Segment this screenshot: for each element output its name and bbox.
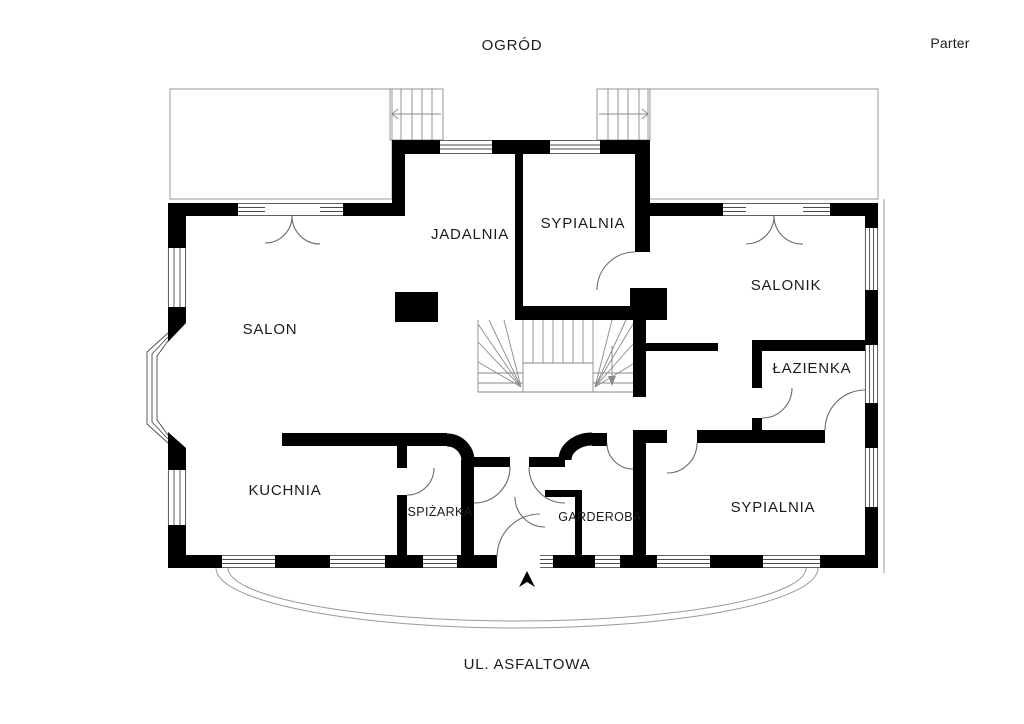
floor-plan: OGRÓD Parter JADALNIA SYPIALNIA SALONIK … bbox=[0, 0, 1024, 724]
bay-window bbox=[147, 333, 168, 443]
staircase bbox=[478, 320, 633, 392]
floor-plan-page: OGRÓD Parter JADALNIA SYPIALNIA SALONIK … bbox=[0, 0, 1024, 724]
garden-label: OGRÓD bbox=[482, 37, 543, 54]
driveway bbox=[216, 568, 818, 628]
exterior-stairs-right-icon bbox=[597, 89, 650, 140]
room-label-salonik: SALONIK bbox=[751, 277, 822, 294]
room-label-jadalnia: JADALNIA bbox=[431, 226, 509, 243]
room-label-sypialnia-bottom: SYPIALNIA bbox=[731, 499, 816, 516]
street-label: UL. ASFALTOWA bbox=[464, 656, 591, 673]
room-label-lazienka: ŁAZIENKA bbox=[773, 360, 852, 377]
north-arrow-icon bbox=[519, 571, 535, 587]
terrace-right bbox=[648, 89, 878, 199]
floor-title: Parter bbox=[930, 35, 969, 51]
front-door bbox=[497, 514, 540, 557]
fireplace bbox=[395, 292, 438, 322]
room-label-salon: SALON bbox=[243, 321, 298, 338]
terrace-left bbox=[170, 89, 392, 199]
room-label-spizarka: SPIŻARKA bbox=[407, 505, 472, 519]
stairs-down-arrow-icon bbox=[608, 376, 616, 386]
exterior-stairs-left-icon bbox=[390, 89, 443, 140]
room-label-garderoba: GARDEROBA bbox=[558, 510, 642, 524]
room-label-sypialnia-top: SYPIALNIA bbox=[541, 215, 626, 232]
room-label-kuchnia: KUCHNIA bbox=[248, 482, 321, 499]
